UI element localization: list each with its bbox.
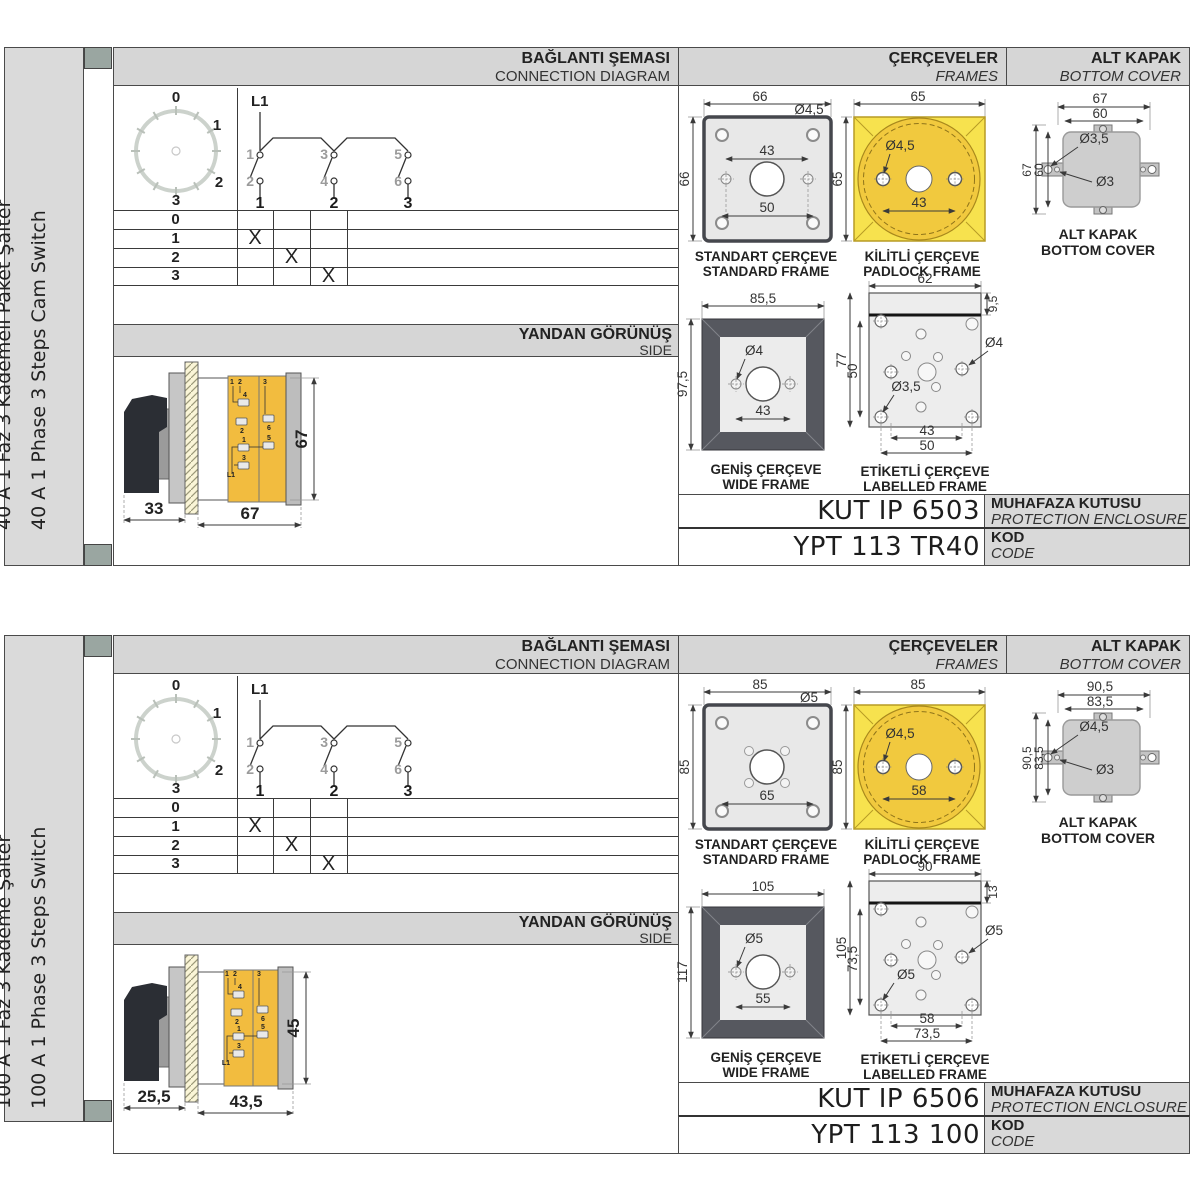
enclosure-label: MUHAFAZA KUTUSUPROTECTION ENCLOSURE — [984, 1083, 1189, 1115]
labelled-frame-caption: ETİKETLİ ÇERÇEVELABELLED FRAME — [842, 1052, 1008, 1082]
svg-text:2: 2 — [233, 971, 237, 978]
binding-gutter — [84, 47, 113, 566]
dim-hole: Ø5 — [800, 690, 818, 705]
standard-frame-drawing: 66 Ø4,5 43 50 66 — [682, 91, 850, 255]
dim-width: 62 — [917, 271, 932, 286]
line-label: L1 — [251, 93, 269, 110]
spacer-block — [198, 378, 228, 500]
contact-nodes — [257, 152, 411, 184]
contact-closed-mark: X — [273, 248, 310, 267]
dim-height: 97,5 — [675, 371, 690, 397]
dim-inner: 43 — [919, 423, 934, 438]
enclosure-label: MUHAFAZA KUTUSUPROTECTION ENCLOSURE — [984, 495, 1189, 527]
table-row-label: 0 — [114, 798, 237, 817]
dim-hole-right: Ø5 — [985, 923, 1003, 938]
header-title: ÇERÇEVELER — [679, 49, 998, 68]
dim-height: 117 — [675, 961, 690, 983]
dial-pos-2: 2 — [215, 762, 223, 779]
dim-strip: 13 — [986, 885, 1000, 899]
dim-inner-height: 83,5 — [1032, 746, 1046, 770]
dial-hub — [172, 147, 180, 155]
dim-width: 105 — [752, 879, 775, 894]
product-title-english: 100 A 1 Phase 3 Steps Switch — [28, 827, 50, 1109]
dim-hole-right: Ø4 — [985, 335, 1004, 350]
svg-text:6: 6 — [261, 1016, 265, 1023]
dim-width: 90 — [917, 859, 932, 874]
switch-position-dial: 0 1 2 3 — [114, 88, 237, 210]
contact-closed-mark: X — [310, 855, 347, 873]
dim-inner-height: 60 — [1032, 163, 1046, 177]
front-plate — [169, 373, 185, 503]
svg-text:5: 5 — [394, 146, 402, 162]
dial-pos-0: 0 — [172, 89, 180, 106]
standard-frame-caption: STANDART ÇERÇEVESTANDARD FRAME — [682, 837, 850, 867]
enclosure-row: KUT IP 6503 MUHAFAZA KUTUSUPROTECTION EN… — [678, 494, 1190, 528]
code-row: YPT 113 TR40 KODCODE — [678, 527, 1190, 566]
wide-frame-drawing: 105 Ø5 55 117 — [682, 881, 850, 1047]
padlock-frame-drawing: 65 Ø4,5 43 65 — [838, 91, 1006, 255]
svg-text:L1: L1 — [227, 472, 235, 479]
svg-text:3: 3 — [320, 734, 328, 750]
dim-hole1: Ø3,5 — [1079, 131, 1108, 146]
dim-body-depth: 43,5 — [229, 1092, 262, 1111]
dim-inner: 43 — [755, 403, 770, 418]
product-title-strip: 100 A 1 Faz 3 Kademe Şalter 100 A 1 Phas… — [4, 635, 84, 1122]
table-row-label: 2 — [114, 248, 237, 267]
svg-text:1: 1 — [242, 437, 246, 444]
svg-text:2: 2 — [246, 173, 254, 189]
svg-text:4: 4 — [320, 173, 328, 189]
contact-closed-mark: X — [237, 229, 273, 248]
svg-text:4: 4 — [320, 761, 328, 777]
dim-hole2: Ø3 — [1096, 174, 1114, 189]
bottom-cover-drawing: 67 60 Ø3,5 Ø3 67 60 — [1012, 90, 1190, 224]
dim-inner: 55 — [755, 991, 770, 1006]
dim-width: 66 — [752, 89, 767, 104]
shaft-hole — [906, 166, 932, 192]
grid-line — [237, 676, 238, 874]
dim-width: 65 — [910, 89, 925, 104]
bottom-cover-caption: ALT KAPAKBOTTOM COVER — [1006, 814, 1190, 846]
panel-wall-hatch — [185, 955, 198, 1102]
shaft-hole — [750, 750, 784, 784]
dim-height: 85 — [677, 759, 692, 774]
dim-inner2: 50 — [759, 200, 774, 215]
contact-closed-mark: X — [273, 836, 310, 855]
dim-outer-width: 67 — [1092, 91, 1107, 106]
standard-frame-caption: STANDART ÇERÇEVESTANDARD FRAME — [682, 249, 850, 279]
grid-line — [237, 88, 238, 286]
table-row-label: 3 — [114, 855, 237, 873]
dim-inner2: 73,5 — [914, 1026, 940, 1041]
dim-hole: Ø4,5 — [794, 102, 823, 117]
connection-schematic: L1 135 246 123 — [237, 88, 680, 210]
bottom-cover-drawing: 90,5 83,5 Ø4,5 Ø3 90,5 83,5 — [1012, 678, 1190, 812]
dial-pos-1: 1 — [213, 117, 221, 134]
schematic-wires — [250, 700, 408, 787]
dim-height: 65 — [830, 171, 845, 186]
side-view-drawing: 1 2 4 2 3 6 1 5 3 L1 45 25,5 43,5 — [114, 945, 680, 1120]
dim-hole1: Ø4,5 — [1079, 719, 1108, 734]
switch-position-dial: 0 1 2 3 — [114, 676, 237, 798]
dim-height: 67 — [292, 430, 311, 449]
contact-closed-mark: X — [310, 267, 347, 285]
svg-text:3: 3 — [263, 379, 267, 386]
svg-text:2: 2 — [246, 761, 254, 777]
product-title-strip: 40 A 1 Faz 3 Kademeli Paket Şalter 40 A … — [4, 47, 84, 566]
table-row-label: 1 — [114, 229, 237, 248]
dim-hole2: Ø3 — [1096, 762, 1114, 777]
svg-text:1: 1 — [230, 379, 234, 386]
labelled-frame-drawing: 62 9,5 77 50 Ø4 Ø3,5 43 50 — [842, 277, 1008, 461]
labelled-frame-drawing: 90 13 105 73,5 Ø5 Ø5 58 73 — [842, 865, 1008, 1049]
product-code: YPT 113 100 — [679, 1117, 984, 1153]
dial-pos-3: 3 — [172, 780, 180, 797]
dim-hole: Ø4 — [745, 343, 764, 358]
dim-width: 85 — [910, 677, 925, 692]
svg-text:6: 6 — [394, 761, 402, 777]
header-subtitle: CONNECTION DIAGRAM — [114, 68, 670, 85]
standard-frame-drawing: 85 Ø5 65 85 — [682, 679, 850, 843]
shaft-hole — [750, 162, 784, 196]
header-title: BAĞLANTI ŞEMASI — [114, 49, 670, 68]
wide-frame-caption: GENİŞ ÇERÇEVEWIDE FRAME — [682, 462, 850, 492]
binding-mark — [84, 635, 112, 657]
connection-diagram-section: 0 1 2 3 L1 135 246 123 — [113, 674, 679, 1154]
dim-outer-width: 90,5 — [1087, 679, 1113, 694]
binding-gutter — [84, 635, 113, 1122]
bottom-cover-caption: ALT KAPAKBOTTOM COVER — [1006, 226, 1190, 258]
contact-numbers: 135 246 — [246, 146, 402, 189]
dim-inner: 43 — [759, 143, 774, 158]
contact-nodes — [257, 740, 411, 772]
binding-mark — [84, 1100, 112, 1122]
dim-hole-bottom: Ø3,5 — [891, 379, 920, 394]
header-title: YANDAN GÖRÜNÜŞ — [114, 325, 672, 343]
connection-schematic: L1 135 246 123 — [237, 676, 680, 798]
code-label: KODCODE — [984, 529, 1189, 565]
wide-frame-caption: GENİŞ ÇERÇEVEWIDE FRAME — [682, 1050, 850, 1080]
product-title-turkish: 100 A 1 Faz 3 Kademe Şalter — [0, 835, 15, 1109]
product-title-english: 40 A 1 Phase 3 Steps Cam Switch — [28, 210, 50, 530]
dim-strip: 9,5 — [986, 295, 1000, 312]
dial-pos-3: 3 — [172, 192, 180, 209]
dim-handle-depth: 25,5 — [137, 1087, 170, 1106]
bottom-cover-section: 90,5 83,5 Ø4,5 Ø3 90,5 83,5 ALT KAPAKBOT… — [1006, 674, 1190, 1082]
dial-pos-0: 0 — [172, 677, 180, 694]
padlock-frame-drawing: 85 Ø4,5 58 85 — [838, 679, 1006, 843]
bottom-cover-section: 67 60 Ø3,5 Ø3 67 60 ALT KAPAKBOTTOM COVE… — [1006, 86, 1190, 494]
svg-text:L1: L1 — [222, 1060, 230, 1067]
table-row-label: 3 — [114, 267, 237, 285]
header-title: ALT KAPAK — [1007, 49, 1181, 68]
binding-mark — [84, 544, 112, 566]
dim-inner2: 50 — [919, 438, 934, 453]
dim-hole: Ø4,5 — [885, 138, 914, 153]
binding-mark — [84, 47, 112, 69]
svg-text:2: 2 — [240, 428, 244, 435]
svg-text:3: 3 — [320, 146, 328, 162]
connection-diagram-section: 0 1 2 3 L1 135 246 123 — [113, 86, 679, 566]
header-subtitle: BOTTOM COVER — [1007, 68, 1181, 85]
side-view-drawing: 1 2 4 2 3 6 1 5 3 L1 67 33 67 — [114, 357, 680, 532]
connection-diagram-header: BAĞLANTI ŞEMASI CONNECTION DIAGRAM — [113, 635, 679, 674]
connection-diagram-header: BAĞLANTI ŞEMASI CONNECTION DIAGRAM — [113, 47, 679, 86]
labelled-frame-caption: ETİKETLİ ÇERÇEVELABELLED FRAME — [842, 464, 1008, 494]
shaft-hole — [906, 754, 932, 780]
dim-hole: Ø5 — [745, 931, 763, 946]
switch-body — [224, 970, 278, 1086]
contact-numbers: 135 246 — [246, 734, 402, 777]
dim-inner: 65 — [759, 788, 774, 803]
dim-height: 85 — [830, 759, 845, 774]
dial-hub — [172, 735, 180, 743]
dim-inner-width: 83,5 — [1087, 694, 1113, 709]
product-code: YPT 113 TR40 — [679, 529, 984, 565]
dim-body-depth: 67 — [241, 504, 260, 523]
dim-height: 66 — [677, 171, 692, 186]
svg-text:6: 6 — [267, 425, 271, 432]
svg-text:1: 1 — [246, 734, 254, 750]
dial-pos-1: 1 — [213, 705, 221, 722]
frames-header: ÇERÇEVELER FRAMES — [678, 47, 1007, 86]
spacer-block — [198, 972, 224, 1084]
grid-line — [347, 798, 348, 874]
bottom-cover-header: ALT KAPAK BOTTOM COVER — [1006, 47, 1190, 86]
svg-text:3: 3 — [237, 1043, 241, 1050]
code-row: YPT 113 100 KODCODE — [678, 1115, 1190, 1154]
svg-text:5: 5 — [394, 734, 402, 750]
svg-text:2: 2 — [235, 1019, 239, 1026]
table-row-label: 2 — [114, 836, 237, 855]
dim-hole: Ø4,5 — [885, 726, 914, 741]
side-view-header: YANDAN GÖRÜNÜŞ SIDE — [114, 324, 680, 357]
product-title-turkish: 40 A 1 Faz 3 Kademeli Paket Şalter — [0, 200, 15, 530]
svg-text:1: 1 — [225, 971, 229, 978]
svg-text:5: 5 — [261, 1024, 265, 1031]
dim-inner: 58 — [911, 783, 926, 798]
dim-inner-width: 60 — [1092, 106, 1107, 121]
product-panel-100a: 100 A 1 Faz 3 Kademe Şalter 100 A 1 Phas… — [4, 635, 1190, 1154]
frames-header: ÇERÇEVELER FRAMES — [678, 635, 1007, 674]
svg-text:1: 1 — [246, 146, 254, 162]
svg-text:3: 3 — [257, 971, 261, 978]
enclosure-code: KUT IP 6506 — [679, 1083, 984, 1115]
header-subtitle: SIDE — [114, 343, 672, 357]
svg-text:4: 4 — [238, 984, 242, 991]
product-panel-40a: 40 A 1 Faz 3 Kademeli Paket Şalter 40 A … — [4, 47, 1190, 566]
dim-height2: 50 — [845, 363, 860, 378]
frames-section: 85 Ø5 65 85 STANDART ÇERÇEVESTANDARD FRA… — [678, 674, 1007, 1082]
svg-text:5: 5 — [267, 435, 271, 442]
svg-text:1: 1 — [237, 1026, 241, 1033]
svg-text:4: 4 — [243, 392, 247, 399]
side-view-header: YANDAN GÖRÜNÜŞ SIDE — [114, 912, 680, 945]
enclosure-row: KUT IP 6506 MUHAFAZA KUTUSUPROTECTION EN… — [678, 1082, 1190, 1116]
dim-height2: 73,5 — [845, 946, 860, 972]
dim-inner: 58 — [919, 1011, 934, 1026]
dim-height: 45 — [284, 1019, 303, 1038]
shaft-hole — [746, 367, 780, 401]
svg-text:2: 2 — [238, 379, 242, 386]
bottom-cover-header: ALT KAPAK BOTTOM COVER — [1006, 635, 1190, 674]
dim-hole-bottom: Ø5 — [897, 967, 915, 982]
enclosure-code: KUT IP 6503 — [679, 495, 984, 527]
table-row-label: 0 — [114, 210, 237, 229]
frames-section: 66 Ø4,5 43 50 66 STANDART ÇERÇEVESTANDAR… — [678, 86, 1007, 494]
schematic-wires — [250, 112, 408, 199]
line-label: L1 — [251, 681, 269, 698]
table-row-label: 1 — [114, 817, 237, 836]
grid-line — [114, 285, 680, 286]
front-plate — [169, 967, 185, 1087]
dim-width: 85 — [752, 677, 767, 692]
svg-text:6: 6 — [394, 173, 402, 189]
grid-line — [347, 210, 348, 286]
header-subtitle: FRAMES — [679, 68, 998, 85]
dim-handle-depth: 33 — [145, 499, 164, 518]
panel-wall-hatch — [185, 362, 198, 514]
code-label: KODCODE — [984, 1117, 1189, 1153]
dim-width: 85,5 — [750, 291, 776, 306]
contact-closed-mark: X — [237, 817, 273, 836]
grid-line — [114, 873, 680, 874]
svg-text:3: 3 — [242, 455, 246, 462]
shaft-hole — [746, 955, 780, 989]
dim-inner: 43 — [911, 195, 926, 210]
switch-body — [228, 376, 286, 502]
dial-pos-2: 2 — [215, 174, 223, 191]
wide-frame-drawing: 85,5 Ø4 43 97,5 — [682, 293, 850, 459]
